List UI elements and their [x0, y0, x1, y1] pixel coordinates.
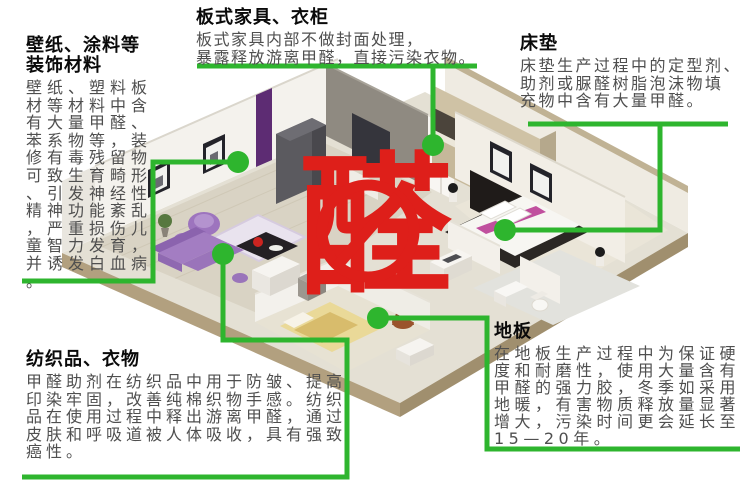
note-title-line2: 装饰材料 — [26, 56, 166, 76]
note-title: 壁纸、涂料等 — [26, 36, 166, 56]
leader-dot — [227, 151, 249, 173]
leader-dot — [367, 307, 389, 329]
leader-furniture — [197, 66, 477, 145]
note-panel-furniture: 板式家具、衣柜 板式家具内部不做封面处理， 暴露释放游离甲醛，直接污染衣物。 — [196, 8, 496, 66]
note-body: 甲醛助剂在纺织品中用于防皱、提高 印染牢固，改善纯棉织物手感。纺织 品在使用过程… — [26, 373, 356, 461]
note-body: 壁纸、塑料板 材等材料中含 有大量甲醛、 苯系物等，装 修有毒残留物 可致生育畸… — [26, 79, 166, 290]
leader-line — [505, 124, 660, 230]
note-textiles: 纺织品、衣物 甲醛助剂在纺织品中用于防皱、提高 印染牢固，改善纯棉织物手感。纺织… — [26, 350, 356, 461]
note-wallpaper-materials: 壁纸、涂料等 装饰材料 壁纸、塑料板 材等材料中含 有大量甲醛、 苯系物等，装 … — [26, 36, 166, 290]
note-body: 床垫生产过程中的定型剂、 助剂或脲醛树脂泡沫物填 充物中含有大量甲醛。 — [520, 57, 750, 110]
leader-mattress — [505, 124, 728, 230]
prohibition-sign — [322, 185, 414, 277]
note-mattress: 床垫 床垫生产过程中的定型剂、 助剂或脲醛树脂泡沫物填 充物中含有大量甲醛。 — [520, 34, 750, 110]
note-title: 床垫 — [520, 34, 750, 54]
note-title: 板式家具、衣柜 — [196, 8, 496, 28]
leader-dot — [494, 219, 516, 241]
note-title: 纺织品、衣物 — [26, 350, 356, 370]
leader-dot — [212, 243, 234, 265]
formaldehyde-infographic: 醛 — [0, 0, 750, 487]
note-title: 地板 — [494, 322, 746, 342]
note-flooring: 地板 在地板生产过程中为保证硬 度和耐磨性，使用大量含有 甲醛的强力胶，冬季如采… — [494, 322, 746, 447]
note-body: 在地板生产过程中为保证硬 度和耐磨性，使用大量含有 甲醛的强力胶，冬季如采用 地… — [494, 345, 746, 447]
note-body: 板式家具内部不做封面处理， 暴露释放游离甲醛，直接污染衣物。 — [196, 31, 496, 66]
leader-dot — [422, 134, 444, 156]
